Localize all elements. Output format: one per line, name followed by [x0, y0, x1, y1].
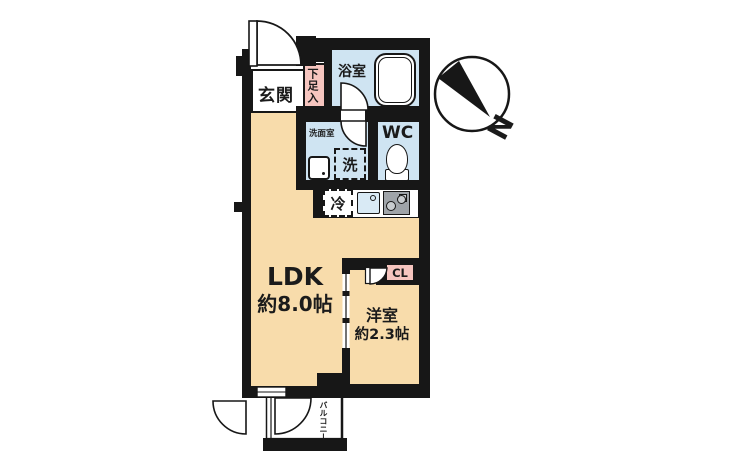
bathroom-label: 浴室 — [338, 61, 366, 81]
western-room-label: 洋室 約2.3帖 — [346, 306, 418, 344]
wall-kitchen-nook — [313, 188, 322, 218]
wall-partition-top — [342, 258, 350, 274]
closet-box: CL — [387, 265, 413, 280]
ldk-label: LDK 約8.0帖 — [250, 263, 340, 316]
ldk-name: LDK — [250, 263, 340, 292]
compass-north-label: N — [480, 108, 520, 144]
balcony-floor — [266, 398, 343, 439]
western-room-size: 約2.3帖 — [346, 326, 418, 344]
balcony-label: バルコニー — [318, 401, 329, 441]
doorway-gap — [341, 106, 366, 122]
wall-ldk-bottom — [242, 386, 320, 398]
washroom-sink-icon — [308, 156, 330, 180]
wall-balcony-bottom — [263, 438, 347, 451]
stove-icon — [383, 191, 410, 215]
entrance-door-arc — [257, 21, 301, 65]
wall-right — [419, 38, 430, 398]
closet-label: CL — [392, 266, 408, 280]
wall-wc-divider — [368, 106, 378, 182]
washing-machine-box: 洗 — [334, 148, 366, 180]
wall-washroom-left — [296, 106, 306, 190]
wall-left-pillar — [234, 202, 243, 212]
wall-western-bottom — [342, 384, 430, 398]
floor-plan: CL 洗 冷 — [0, 0, 730, 470]
exterior-door-arc — [213, 401, 246, 434]
ldk-size: 約8.0帖 — [250, 292, 340, 316]
wall-left-top-step — [236, 56, 251, 76]
washing-machine-label: 洗 — [342, 154, 357, 175]
washroom-label: 洗面室 — [309, 127, 335, 139]
wall-bath-left — [324, 50, 332, 112]
western-room-name: 洋室 — [346, 306, 418, 326]
toilet-icon — [384, 144, 410, 182]
fridge-box: 冷 — [323, 189, 353, 217]
shoe-storage-label: 下足入 — [307, 68, 318, 104]
fridge-label: 冷 — [330, 193, 345, 214]
entrance-label: 玄関 — [258, 81, 294, 106]
kitchen-sink-icon — [357, 192, 380, 214]
wall-left — [242, 49, 251, 398]
wc-label: WC — [382, 123, 413, 143]
bathtub-icon — [374, 53, 416, 107]
